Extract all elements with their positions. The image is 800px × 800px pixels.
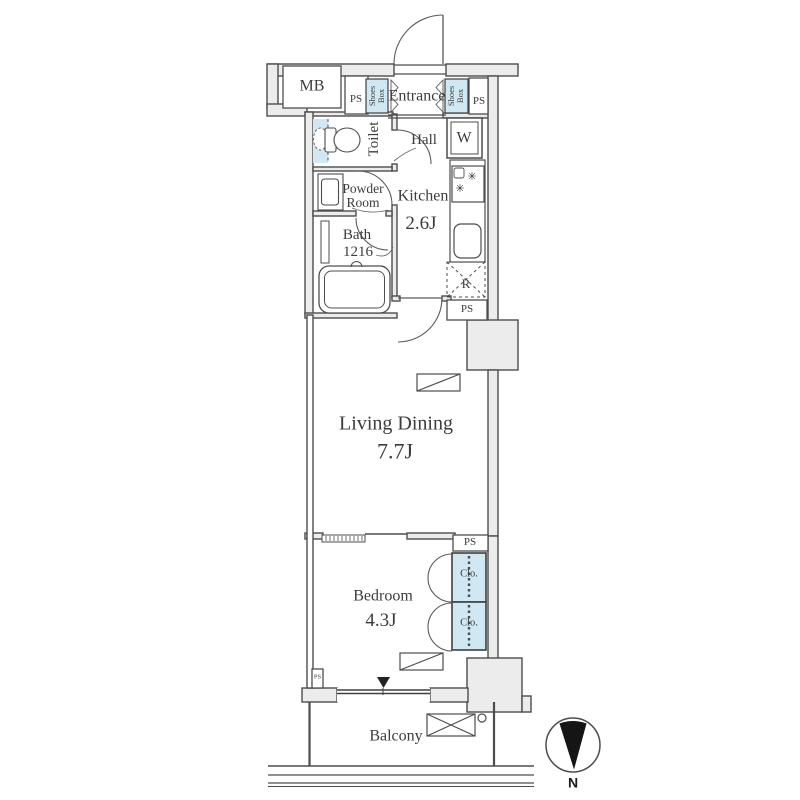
entrance-door-arc [394,15,443,64]
room-size-bath: 1216 [343,245,373,261]
pipe-space-label-5: PS [314,675,322,682]
room-label-powder-room: Powder Room [331,182,395,210]
room-label-entrance: Entrance [389,89,446,106]
north-wedge [560,721,587,770]
pipe-space-label-4: PS [464,537,476,549]
room-label-balcony: Balcony [369,729,422,746]
shoes-box-label-2: Shoes Box [447,83,465,109]
room-size-bedroom: 4.3J [365,611,396,631]
room-size-kitchen: 2.6J [405,214,436,234]
floorplan-drawing [0,0,800,800]
compass-n-label: N [568,776,578,791]
meter-box-label: MB [300,79,325,96]
bedroom-window [337,688,430,702]
closet-doors [428,554,452,651]
stove-burner-icon-2: ✳ [455,184,464,196]
room-size-living-dining: 7.7J [377,439,413,462]
room-label-kitchen: Kitchen [398,189,449,206]
washer-label: W [456,131,471,148]
kitchen-sink [454,224,481,258]
closet-label-1: Clo. [460,568,478,579]
pipe-space-label-3: PS [461,304,473,316]
refrigerator-label: R [462,277,471,291]
toilet-fixture [313,119,360,163]
room-label-bedroom: Bedroom [353,589,413,606]
outdoor-unit [427,714,486,736]
room-label-living-dining: Living Dining [339,414,453,435]
room-label-bath: Bath [343,228,371,244]
compass-icon [546,718,600,772]
room-label-hall: Hall [411,133,437,149]
stove-burner-icon-1: ✳ [467,172,476,184]
exterior-walls [267,64,531,712]
ac-unit-bedroom [400,653,443,670]
orientation-marker-triangle [377,677,390,688]
ac-unit-living [417,374,460,391]
pipe-space-label-1: PS [350,94,362,106]
pipe-space-label-2: PS [473,96,485,108]
drain-cap-icon [478,714,486,722]
shoes-box-label-1: Shoes Box [368,83,386,109]
closet-label-2: Clo. [460,617,478,628]
sliding-door [322,534,407,542]
kitchen-living-door-arc [398,298,442,342]
floorplan: MB PS Shoes Box Entrance Shoes Box PS To… [0,0,800,800]
room-label-toilet: Toilet [367,122,383,157]
